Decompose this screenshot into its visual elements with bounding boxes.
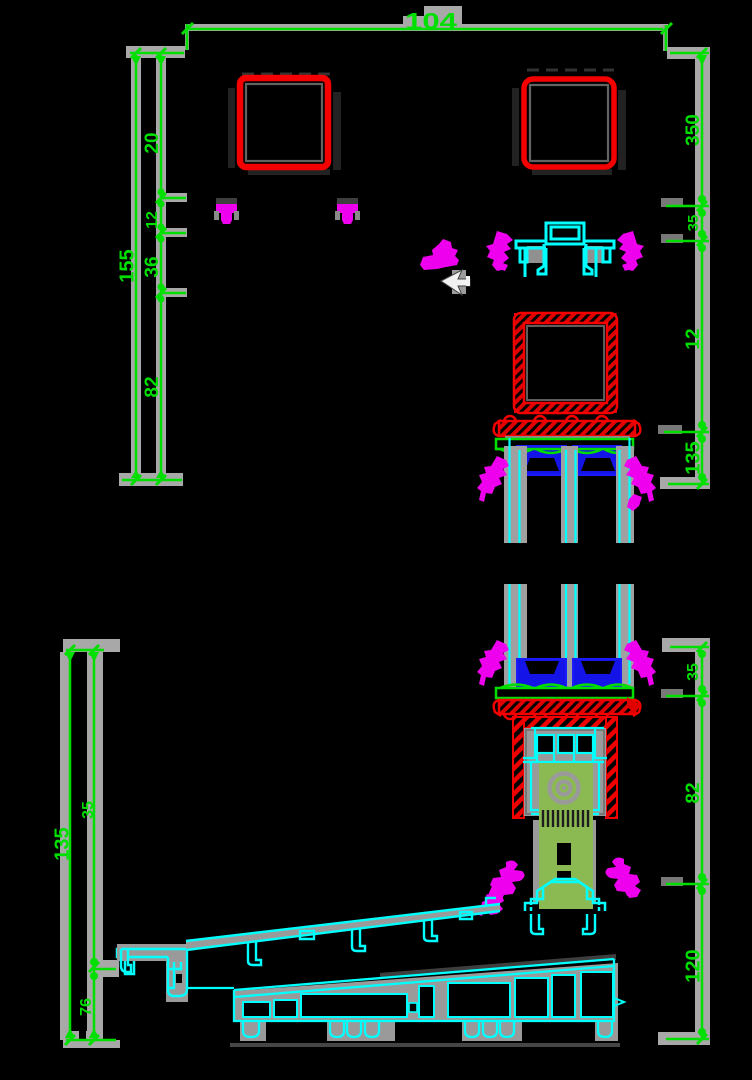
svg-text:155: 155 bbox=[116, 249, 138, 282]
svg-text:35: 35 bbox=[685, 663, 702, 681]
svg-text:20: 20 bbox=[142, 132, 163, 153]
svg-text:120: 120 bbox=[682, 949, 704, 982]
svg-text:104: 104 bbox=[405, 8, 457, 34]
svg-text:35: 35 bbox=[685, 215, 702, 232]
svg-text:350: 350 bbox=[683, 114, 704, 146]
svg-text:76: 76 bbox=[78, 998, 95, 1016]
svg-text:82: 82 bbox=[142, 376, 163, 397]
svg-text:82: 82 bbox=[683, 782, 704, 803]
svg-text:35: 35 bbox=[80, 801, 97, 819]
svg-text:12: 12 bbox=[683, 328, 704, 349]
svg-text:135: 135 bbox=[682, 441, 704, 474]
svg-text:135: 135 bbox=[51, 827, 73, 860]
svg-text:36: 36 bbox=[142, 256, 163, 277]
